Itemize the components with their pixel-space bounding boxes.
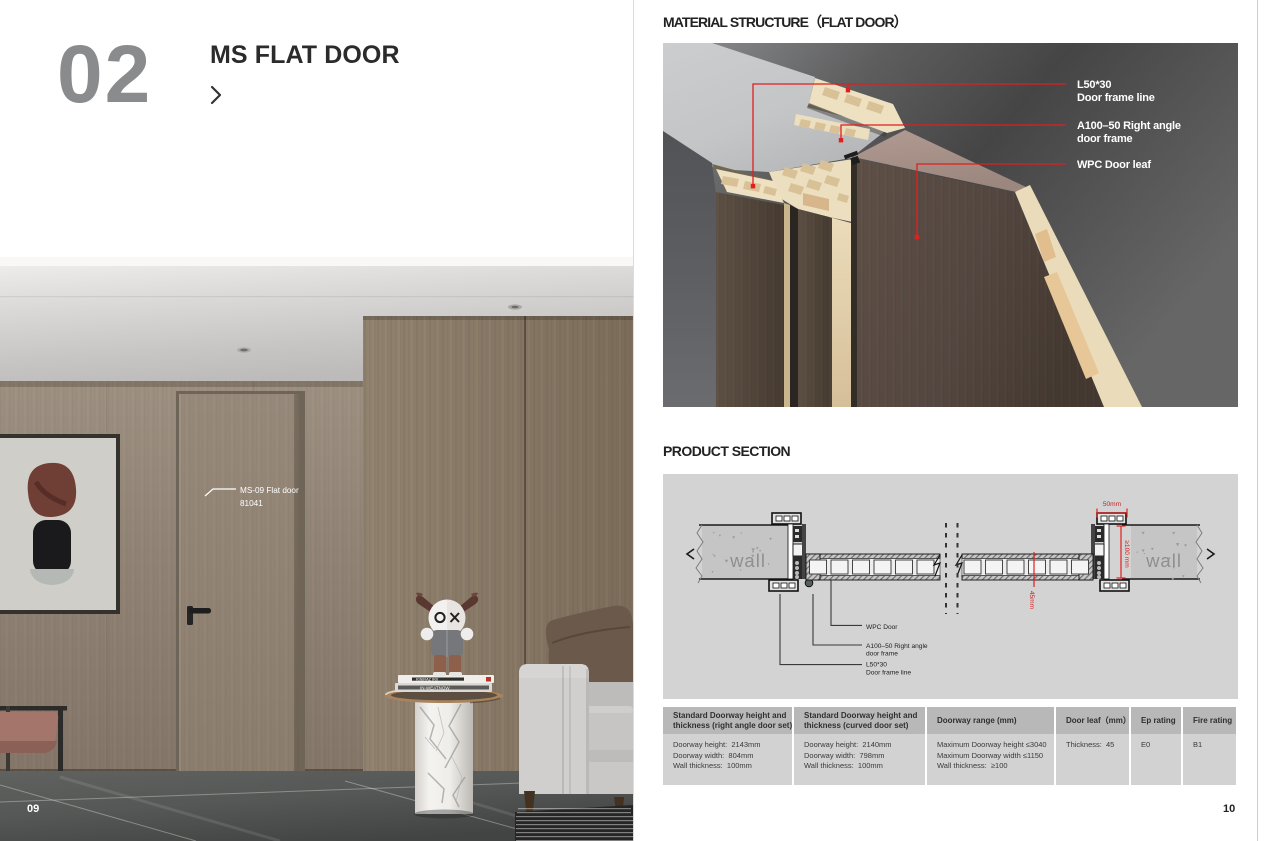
svg-text:81041: 81041: [240, 499, 263, 508]
svg-text:A100–50 Right angle: A100–50 Right angle: [866, 643, 928, 650]
svg-text:50mm: 50mm: [1103, 501, 1122, 508]
svg-text:Door frame line: Door frame line: [866, 670, 911, 677]
svg-text:L50*30: L50*30: [1077, 79, 1111, 91]
svg-text:MS-09 Flat door: MS-09 Flat door: [240, 486, 299, 495]
svg-text:wall: wall: [1145, 550, 1182, 571]
svg-text:KINIRAZ IRII: KINIRAZ IRII: [416, 678, 438, 682]
svg-text:wall: wall: [729, 550, 766, 571]
svg-text:≥100 mm: ≥100 mm: [1123, 540, 1130, 568]
svg-text:A100–50 Right angle: A100–50 Right angle: [1077, 120, 1181, 132]
svg-text:door frame: door frame: [866, 651, 898, 658]
svg-text:WPC Door leaf: WPC Door leaf: [1077, 159, 1151, 171]
svg-text:L50*30: L50*30: [866, 662, 887, 669]
svg-text:45mm: 45mm: [1028, 591, 1035, 610]
svg-text:WPC Door: WPC Door: [866, 624, 898, 631]
svg-text:Door frame line: Door frame line: [1077, 92, 1155, 104]
svg-text:IN·WEATNOW: IN·WEATNOW: [420, 686, 450, 691]
svg-text:door frame: door frame: [1077, 133, 1133, 145]
